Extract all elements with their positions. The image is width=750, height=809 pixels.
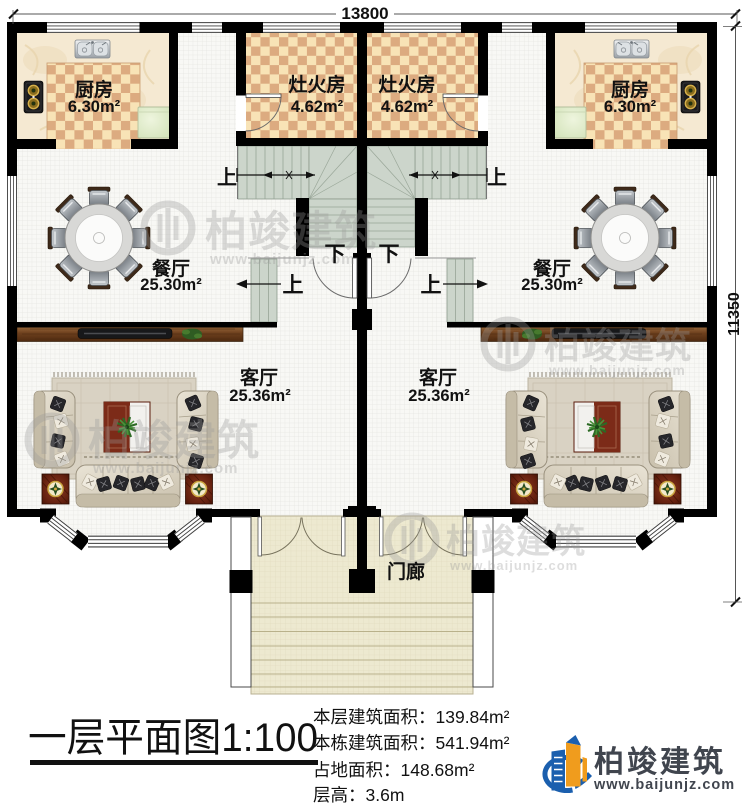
svg-text:灶火房: 灶火房 [378, 73, 435, 96]
svg-text:11350: 11350 [726, 292, 743, 336]
svg-text:www.baijunjz.com: www.baijunjz.com [593, 777, 735, 793]
svg-text:25.36m²: 25.36m² [229, 387, 291, 405]
svg-text:柏竣建筑: 柏竣建筑 [594, 745, 726, 779]
svg-text:下: 下 [379, 243, 400, 266]
svg-text:25.30m²: 25.30m² [521, 276, 583, 294]
svg-text:柏竣建筑: 柏竣建筑 [544, 325, 692, 366]
svg-text:柏竣建筑: 柏竣建筑 [88, 417, 260, 464]
svg-text:4.62m²: 4.62m² [291, 98, 344, 116]
svg-text:门廊: 门廊 [387, 560, 425, 583]
svg-text:www.baijunjz.com: www.baijunjz.com [548, 362, 686, 378]
svg-text:占地面积：148.68m²: 占地面积：148.68m² [313, 760, 475, 780]
svg-text:本栋建筑面积：541.94m²: 本栋建筑面积：541.94m² [313, 733, 510, 753]
svg-text:6.30m²: 6.30m² [604, 98, 657, 116]
svg-text:6.30m²: 6.30m² [68, 98, 121, 116]
svg-text:下: 下 [325, 243, 346, 266]
svg-text:柏竣建筑: 柏竣建筑 [446, 522, 586, 561]
svg-text:层高：3.6m: 层高：3.6m [313, 785, 404, 805]
svg-text:13800: 13800 [341, 4, 388, 23]
svg-text:柏竣建筑: 柏竣建筑 [205, 208, 377, 255]
svg-text:客厅: 客厅 [419, 366, 457, 389]
svg-text:客厅: 客厅 [240, 366, 278, 389]
svg-text:上: 上 [283, 274, 304, 297]
svg-text:一层平面图1:100: 一层平面图1:100 [28, 716, 318, 760]
svg-text:本层建筑面积：139.84m²: 本层建筑面积：139.84m² [313, 707, 510, 727]
svg-text:上: 上 [421, 274, 442, 297]
svg-text:www.baijunjz.com: www.baijunjz.com [449, 558, 578, 573]
svg-text:25.36m²: 25.36m² [408, 387, 470, 405]
svg-text:上: 上 [217, 166, 237, 189]
svg-text:25.30m²: 25.30m² [140, 276, 202, 294]
svg-text:灶火房: 灶火房 [288, 73, 345, 96]
svg-text:www.baijunjz.com: www.baijunjz.com [92, 460, 238, 477]
svg-text:上: 上 [487, 166, 507, 189]
svg-text:4.62m²: 4.62m² [381, 98, 434, 116]
